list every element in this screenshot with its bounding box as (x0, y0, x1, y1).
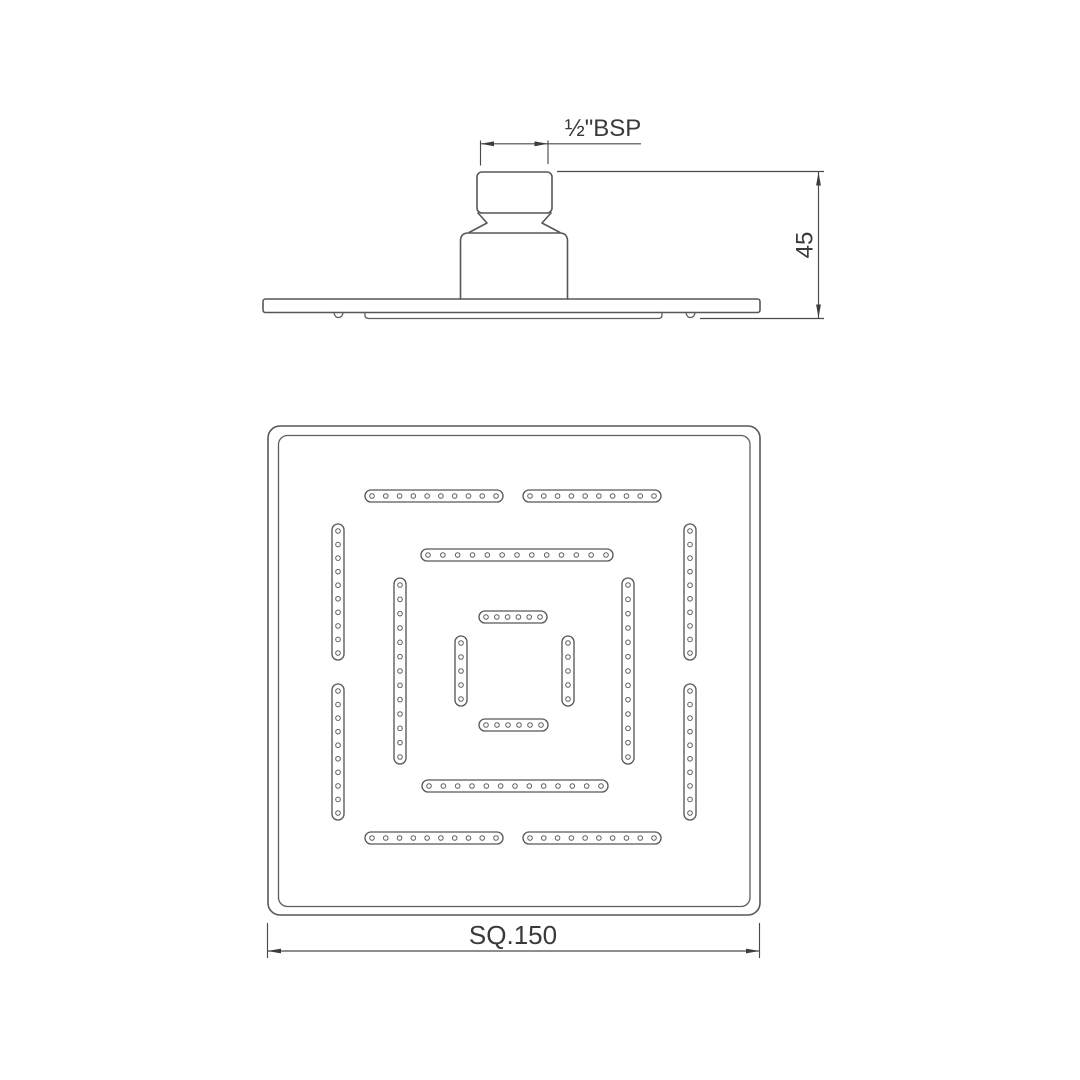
nozzle-hole (455, 784, 460, 789)
nozzle-hole (370, 836, 375, 841)
nozzle-hole (538, 615, 543, 620)
nozzle-hole (485, 553, 490, 558)
face-inner-edge (279, 436, 751, 907)
nozzle-hole (688, 729, 693, 734)
nozzle-hole (688, 784, 693, 789)
nozzle-hole (626, 712, 631, 717)
bottom-view (268, 426, 760, 915)
face-recess-outline (365, 313, 662, 319)
nozzle-hole (480, 836, 485, 841)
nozzle-hole (688, 542, 693, 547)
nozzle-hole (528, 723, 533, 728)
nozzle-hole (439, 836, 444, 841)
nozzle-hole (427, 784, 432, 789)
nozzle-hole (452, 494, 457, 499)
nozzle-hole (626, 583, 631, 588)
nozzle-slot (394, 578, 406, 764)
nozzle-hole (566, 655, 571, 660)
nozzle-hole (583, 494, 588, 499)
nozzle-hole (336, 556, 341, 561)
nozzle-hole (336, 756, 341, 761)
nozzle-hole (626, 626, 631, 631)
nozzle-hole (425, 494, 430, 499)
nozzle-hole (515, 553, 520, 558)
nozzle-hole (626, 726, 631, 731)
nozzle-hole (688, 556, 693, 561)
nozzle-hole (336, 610, 341, 615)
nozzle-hole (452, 836, 457, 841)
nozzle-hole (527, 784, 532, 789)
nozzle-hole (517, 723, 522, 728)
nozzle-hole (336, 651, 341, 656)
nozzle-hole (569, 494, 574, 499)
nozzle-hole (336, 702, 341, 707)
nozzle-hole (626, 669, 631, 674)
nozzle-hole (530, 553, 535, 558)
nozzle-hole (397, 494, 402, 499)
technical-drawing-canvas: ½"BSP 45 SQ.150 (0, 0, 1080, 1080)
connector-body-outline (461, 233, 568, 299)
size-dimension: SQ.150 (268, 920, 760, 958)
nozzle-hole (555, 836, 560, 841)
nozzle-hole (398, 726, 403, 731)
nozzle-hole (336, 784, 341, 789)
arrowhead-bottom (816, 305, 821, 319)
nozzle-hole (688, 529, 693, 534)
nozzle-hole (383, 494, 388, 499)
nozzle-hole (336, 797, 341, 802)
nozzle-hole (626, 611, 631, 616)
nozzle-hole (544, 553, 549, 558)
nozzle-hole (688, 624, 693, 629)
nozzle-hole (441, 784, 446, 789)
nozzle-hole (688, 596, 693, 601)
nozzle-slot (332, 684, 344, 820)
arrowhead-left (481, 141, 495, 146)
nozzle-hole (498, 784, 503, 789)
shower-head-drawing: ½"BSP 45 SQ.150 (0, 0, 1080, 1080)
nozzle-hole (455, 553, 460, 558)
nozzle-hole (494, 494, 499, 499)
nozzle-hole (688, 716, 693, 721)
height-dimension-label: 45 (792, 232, 819, 259)
nozzle-hole (398, 669, 403, 674)
nozzle-hole (459, 697, 464, 702)
arrowhead-right (535, 141, 549, 146)
nozzle-hole (466, 494, 471, 499)
nozzle-hole (466, 836, 471, 841)
nozzle-slot (332, 524, 344, 660)
nozzle-hole (527, 615, 532, 620)
nozzle-hole (528, 836, 533, 841)
nozzle-hole (500, 553, 505, 558)
height-dimension: 45 (557, 172, 824, 319)
nozzle-hole (426, 553, 431, 558)
nozzle-hole (688, 689, 693, 694)
nozzle-hole (528, 494, 533, 499)
thread-size-label: ½"BSP (565, 115, 642, 142)
nozzle-hole (688, 756, 693, 761)
nozzle-hole (484, 723, 489, 728)
nozzle-slot (622, 578, 634, 764)
nozzle-hole (624, 836, 629, 841)
thread-dimension: ½"BSP (481, 115, 642, 166)
nozzle-hole (398, 611, 403, 616)
nozzle-slot (479, 611, 547, 623)
nozzle-hole (336, 729, 341, 734)
nozzle-hole (688, 702, 693, 707)
nozzle-slot (523, 832, 661, 844)
nozzle-hole (336, 716, 341, 721)
nozzle-hole (626, 755, 631, 760)
nozzle-hole (574, 553, 579, 558)
nozzle-hole (470, 553, 475, 558)
nozzle-hole (495, 723, 500, 728)
nozzle-hole (398, 755, 403, 760)
nozzle-hole (398, 626, 403, 631)
nozzle-slot (422, 780, 608, 792)
arrowhead-right (746, 949, 760, 954)
nozzle-hole (688, 637, 693, 642)
nozzle-slot (562, 636, 574, 706)
nozzle-hole (398, 683, 403, 688)
nozzle-hole (626, 597, 631, 602)
nozzle-hole (597, 494, 602, 499)
nozzle-hole (336, 542, 341, 547)
nozzle-hole (569, 836, 574, 841)
nozzle-hole (583, 836, 588, 841)
head-plate-outline (263, 299, 760, 313)
nozzle-hole (610, 836, 615, 841)
nozzle-slot (421, 549, 613, 561)
nozzle-hole (688, 743, 693, 748)
nozzle-hole (555, 494, 560, 499)
nozzle-hole (626, 683, 631, 688)
nozzle-hole (688, 651, 693, 656)
nozzle-hole (652, 494, 657, 499)
nozzle-hole (336, 811, 341, 816)
nozzle-hole (494, 836, 499, 841)
nozzle-hole (688, 770, 693, 775)
nozzle-hole (459, 655, 464, 660)
nozzle-hole (604, 553, 609, 558)
nozzle-hole (688, 811, 693, 816)
nozzle-hole (566, 669, 571, 674)
nipple-taper-right (542, 213, 560, 233)
face-outer-outline (268, 426, 760, 915)
nozzle-pattern (332, 490, 696, 844)
nozzle-hole (398, 640, 403, 645)
nozzle-hole (336, 689, 341, 694)
nozzle-hole (336, 624, 341, 629)
nozzle-hole (541, 836, 546, 841)
nozzle-hole (425, 836, 430, 841)
nozzle-hole (336, 770, 341, 775)
nozzle-hole (398, 697, 403, 702)
nozzle-hole (516, 615, 521, 620)
nozzle-hole (566, 683, 571, 688)
nozzle-hole (441, 553, 446, 558)
nozzle-hole (688, 797, 693, 802)
nozzle-slot (479, 719, 548, 731)
nozzle-hole (688, 610, 693, 615)
nozzle-hole (336, 743, 341, 748)
nozzle-hole (336, 569, 341, 574)
nozzle-hole (626, 640, 631, 645)
nozzle-slot (523, 490, 661, 502)
nozzle-hole (566, 697, 571, 702)
nozzle-hole (559, 553, 564, 558)
nozzle-hole (506, 723, 511, 728)
nozzle-hole (439, 494, 444, 499)
nozzle-hole (397, 836, 402, 841)
arrowhead-top (816, 172, 821, 186)
nozzle-hole (398, 597, 403, 602)
nozzle-slot (365, 490, 503, 502)
nozzle-hole (484, 615, 489, 620)
nozzle-hole (459, 683, 464, 688)
nozzle-hole (480, 494, 485, 499)
nozzle-hole (624, 494, 629, 499)
nozzle-hole (539, 723, 544, 728)
nozzle-hole (398, 712, 403, 717)
nozzle-hole (495, 615, 500, 620)
nozzle-hole (336, 596, 341, 601)
nozzle-hole (652, 836, 657, 841)
nozzle-hole (626, 654, 631, 659)
nozzle-hole (505, 615, 510, 620)
size-dimension-label: SQ.150 (469, 920, 557, 950)
nozzle-hole (484, 784, 489, 789)
nozzle-hole (556, 784, 561, 789)
nipple-taper-left (469, 213, 487, 233)
nozzle-hole (470, 784, 475, 789)
nozzle-hole (626, 697, 631, 702)
arrowhead-left (268, 949, 282, 954)
nozzle-slot (365, 832, 503, 844)
nozzle-hole (584, 784, 589, 789)
nozzle-hole (459, 669, 464, 674)
nozzle-hole (398, 740, 403, 745)
nozzle-hole (626, 740, 631, 745)
nozzle-hole (411, 836, 416, 841)
nozzle-hole (513, 784, 518, 789)
nozzle-hole (599, 784, 604, 789)
nozzle-hole (411, 494, 416, 499)
nozzle-hole (541, 784, 546, 789)
inlet-nipple-outline (477, 172, 552, 213)
nozzle-hole (597, 836, 602, 841)
nozzle-slot (455, 636, 467, 706)
nozzle-hole (589, 553, 594, 558)
nozzle-hole (398, 654, 403, 659)
nozzle-slot (684, 524, 696, 660)
nozzle-hole (688, 583, 693, 588)
nozzle-hole (370, 494, 375, 499)
nozzle-hole (541, 494, 546, 499)
nozzle-hole (688, 569, 693, 574)
nozzle-hole (336, 529, 341, 534)
nozzle-hole (459, 641, 464, 646)
nozzle-hole (610, 494, 615, 499)
nozzle-hole (566, 641, 571, 646)
nozzle-hole (638, 494, 643, 499)
nozzle-hole (570, 784, 575, 789)
nozzle-hole (398, 583, 403, 588)
side-view (263, 172, 760, 319)
nozzle-slot (684, 684, 696, 820)
nozzle-hole (336, 637, 341, 642)
nozzle-hole (638, 836, 643, 841)
nozzle-hole (383, 836, 388, 841)
nozzle-hole (336, 583, 341, 588)
